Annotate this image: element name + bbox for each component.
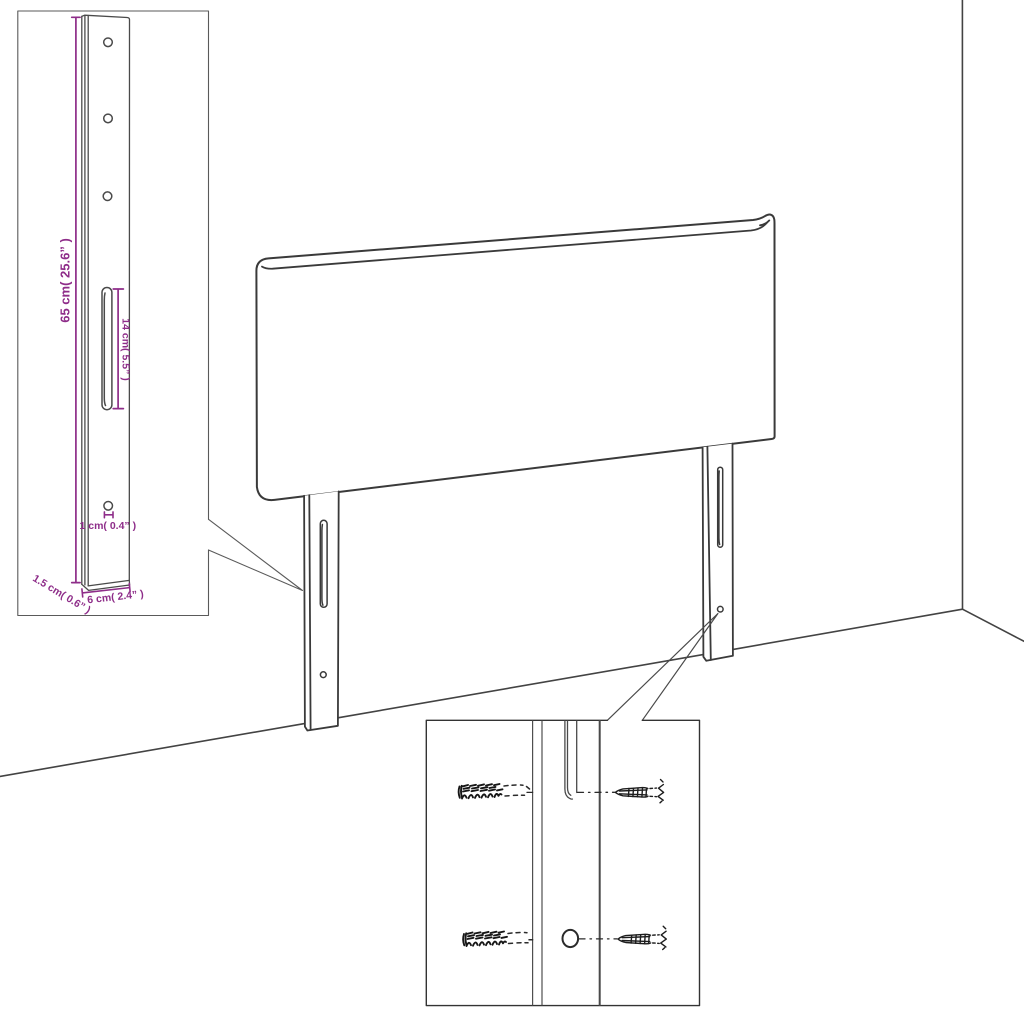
svg-text:1.5 cm( 0.6” ): 1.5 cm( 0.6” ) [30, 572, 92, 616]
svg-text:65 cm( 25.6” ): 65 cm( 25.6” ) [57, 238, 72, 323]
svg-text:14 cm( 5.5” ): 14 cm( 5.5” ) [119, 318, 131, 380]
svg-text:1 cm( 0.4” ): 1 cm( 0.4” ) [79, 520, 136, 532]
